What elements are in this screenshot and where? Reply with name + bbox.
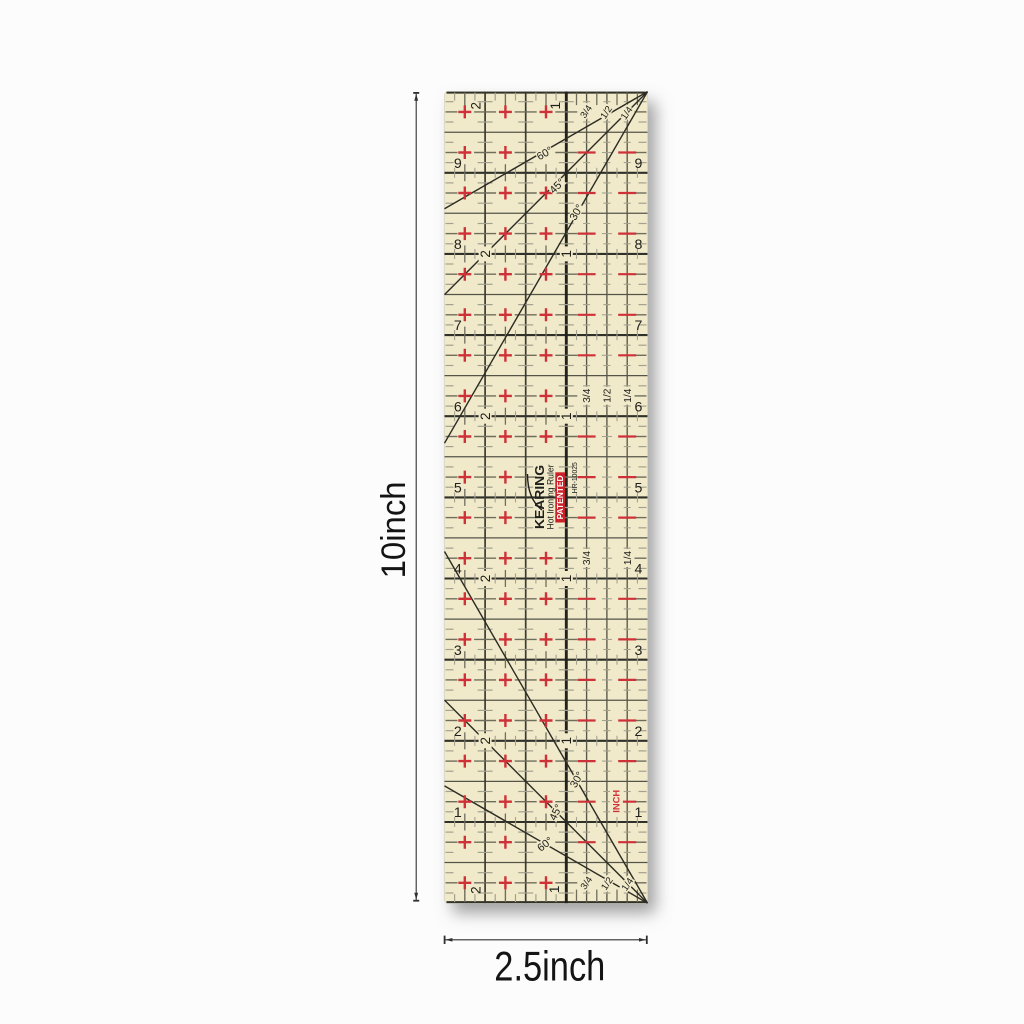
svg-text:9: 9	[635, 156, 643, 172]
svg-text:2: 2	[478, 250, 493, 258]
svg-text:1: 1	[559, 250, 574, 258]
svg-text:10inch: 10inch	[375, 481, 413, 578]
svg-text:5: 5	[454, 481, 462, 497]
svg-text:HR-10025: HR-10025	[570, 462, 579, 493]
svg-text:1/4: 1/4	[623, 551, 634, 565]
svg-text:5: 5	[635, 481, 643, 497]
svg-text:4: 4	[635, 562, 643, 578]
svg-text:6: 6	[635, 399, 643, 415]
svg-text:Hot Ironing Ruler: Hot Ironing Ruler	[545, 464, 555, 529]
svg-text:2: 2	[635, 724, 643, 740]
svg-text:9: 9	[454, 156, 462, 172]
svg-text:2: 2	[478, 737, 493, 745]
svg-text:1: 1	[547, 886, 562, 894]
svg-text:3: 3	[635, 643, 643, 659]
svg-text:1/2: 1/2	[602, 388, 613, 402]
svg-text:6: 6	[454, 399, 462, 415]
svg-text:3/4: 3/4	[582, 388, 593, 402]
svg-text:1/4: 1/4	[623, 388, 634, 402]
svg-text:2: 2	[454, 724, 462, 740]
svg-text:8: 8	[454, 237, 462, 253]
svg-text:2: 2	[478, 412, 493, 420]
svg-text:7: 7	[454, 318, 462, 334]
svg-text:2.5inch: 2.5inch	[494, 943, 605, 990]
svg-text:1: 1	[454, 805, 462, 821]
svg-text:2: 2	[468, 886, 483, 894]
svg-text:1: 1	[548, 102, 563, 110]
svg-text:PATENTED: PATENTED	[556, 475, 565, 519]
svg-text:8: 8	[635, 237, 643, 253]
svg-text:1: 1	[559, 412, 574, 420]
svg-text:1: 1	[635, 805, 643, 821]
svg-text:3: 3	[454, 643, 462, 659]
svg-text:2: 2	[478, 575, 493, 583]
svg-text:1: 1	[559, 737, 574, 745]
svg-text:INCH: INCH	[612, 789, 622, 812]
svg-text:3/4: 3/4	[582, 551, 593, 565]
svg-text:2: 2	[468, 102, 483, 110]
svg-text:7: 7	[635, 318, 643, 334]
svg-text:1: 1	[559, 575, 574, 583]
svg-text:4: 4	[454, 562, 462, 578]
